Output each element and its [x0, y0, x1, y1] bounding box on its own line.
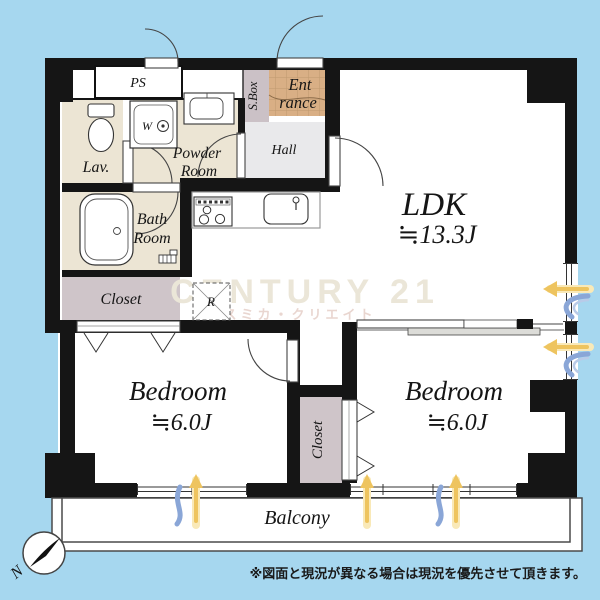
entrance-label-line2: rance: [279, 93, 317, 112]
washing-machine-icon: [130, 101, 177, 148]
ldk-label: LDK: [401, 187, 468, 223]
bathroom-label-line2: Room: [132, 230, 170, 247]
ldk-size-label: ≒13.3J: [398, 220, 478, 249]
kitchen-sink-icon: [264, 194, 308, 224]
disclaimer-note: ※図面と現況が異なる場合は現況を優先させて頂きます。: [250, 566, 586, 581]
window-bedroom2: [350, 483, 517, 497]
closet1-label: Closet: [101, 291, 142, 308]
bedroom1-label: Bedroom: [129, 376, 227, 406]
lavatory-label: Lav.: [82, 159, 110, 176]
ps-label: PS: [129, 76, 146, 91]
watermark-agency: スミカ・クリエイト: [223, 307, 376, 322]
bedroom2-label: Bedroom: [405, 376, 503, 406]
bathroom-label-line1: Bath: [137, 211, 167, 228]
closet2-label: Closet: [310, 420, 326, 459]
shoebox-label: S.Box: [246, 81, 260, 110]
vanity-sink-icon: [184, 93, 234, 124]
balcony-label: Balcony: [264, 507, 330, 529]
floorplan-canvas: CENTURY 21 スミカ・クリエイト: [0, 0, 600, 600]
entrance-label-line1: Ent: [288, 75, 312, 94]
stove-icon: [194, 197, 232, 226]
bedroom2-size-label: ≒6.0J: [427, 410, 489, 436]
meter-box-door: [145, 29, 178, 68]
entrance-door: [277, 16, 323, 68]
airflow-arrow: [177, 487, 180, 524]
powder-room-label-line2: Room: [180, 163, 217, 180]
bathtub-icon: [80, 194, 133, 265]
bedroom1-size-label: ≒6.0J: [151, 410, 213, 436]
compass-north-label: N: [7, 562, 28, 583]
refrigerator-label: R: [206, 294, 215, 309]
compass: N: [7, 532, 65, 583]
washer-label: W: [142, 119, 153, 133]
airflow-arrow: [438, 487, 441, 524]
floorplan-drawing: CENTURY 21 スミカ・クリエイト: [0, 0, 600, 600]
hall-label: Hall: [271, 143, 297, 158]
toilet-icon: [88, 104, 114, 152]
powder-room-label-line1: Powder: [172, 145, 222, 162]
